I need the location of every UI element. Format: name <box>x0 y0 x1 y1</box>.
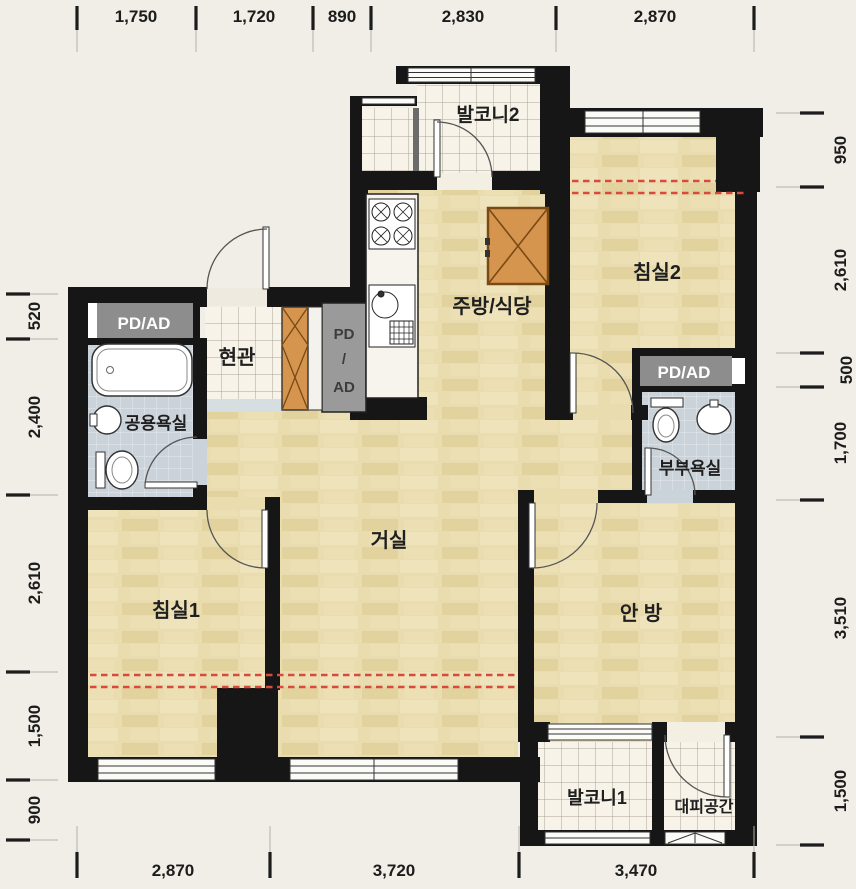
bedroom2-floor-upper <box>570 137 718 194</box>
dim-bottom-1: 2,870 <box>152 861 195 880</box>
entrance-label: 현관 <box>219 346 256 369</box>
bathroom-sink-tap-icon <box>90 414 97 426</box>
entrance-step <box>205 399 285 412</box>
dim-left-3: 2,610 <box>25 562 44 605</box>
dim-right-2: 2,610 <box>831 249 850 292</box>
balcony1-bottom-window <box>545 832 650 844</box>
dim-left-5: 900 <box>25 796 44 824</box>
kitchen-sink <box>369 285 415 347</box>
dim-top-1: 1,750 <box>115 7 158 26</box>
dim-left-2: 2,400 <box>25 396 44 439</box>
dim-right-6: 1,500 <box>831 770 850 813</box>
pd-ad-left-label: PD/AD <box>118 314 171 333</box>
pd-ad-middle-label-1: PD <box>334 326 355 343</box>
dim-right-4: 1,700 <box>831 422 850 465</box>
bedroom2-label: 침실2 <box>633 261 681 284</box>
dim-bottom-3: 3,470 <box>615 861 658 880</box>
pd-ad-right-label: PD/AD <box>658 363 711 382</box>
floor-plan-svg: 발코니2 침실2 주방/식당 현관 공용욕실 부부욕실 거실 침실1 안 방 발… <box>0 0 856 889</box>
dim-top-2: 1,720 <box>233 7 276 26</box>
master-bathroom-label: 부부욕실 <box>659 459 722 478</box>
master-balcony1-window <box>548 724 652 740</box>
dim-left-4: 1,500 <box>25 705 44 748</box>
hall-floor <box>518 420 640 500</box>
bedroom1-label: 침실1 <box>152 599 200 622</box>
common-bathroom-label: 공용욕실 <box>125 414 188 433</box>
refuge-label: 대피공간 <box>675 798 734 816</box>
dim-bottom-2: 3,720 <box>373 861 416 880</box>
master-bedroom-label: 안 방 <box>620 602 663 625</box>
dim-top-3: 890 <box>328 7 356 26</box>
pd-ad-left-vent <box>88 303 97 338</box>
master-sink <box>697 404 731 434</box>
kitchen-dining-label: 주방/식당 <box>452 295 532 318</box>
master-toilet-tank <box>651 398 683 407</box>
stove <box>369 199 415 249</box>
refuge-breakout-window <box>665 832 725 844</box>
shoe-cabinet <box>282 307 308 410</box>
dim-right-3: 500 <box>837 356 856 384</box>
pd-ad-right-vent <box>732 358 745 384</box>
living-room-label: 거실 <box>371 529 408 552</box>
balcony2-divider-wall <box>413 108 419 178</box>
dim-right-1: 950 <box>831 136 850 164</box>
bedroom2-top-window <box>585 111 700 133</box>
balcony2-label: 발코니2 <box>456 104 519 126</box>
balcony1-floor <box>538 742 652 832</box>
balcony2-top-window <box>408 68 535 82</box>
pd-ad-middle-label-3: AD <box>333 379 355 396</box>
master-sink-tap-icon <box>710 400 718 407</box>
dim-left-1: 520 <box>25 302 44 330</box>
bedroom1-bottom-window <box>98 759 215 780</box>
balcony1-label: 발코니1 <box>567 788 627 808</box>
dim-right-5: 3,510 <box>831 597 850 640</box>
toilet-tank <box>96 452 105 488</box>
entrance-side-gap <box>308 307 322 410</box>
dining-table <box>485 208 548 284</box>
dim-top-4: 2,830 <box>442 7 485 26</box>
dim-top-5: 2,870 <box>634 7 677 26</box>
balcony2-sub-floor <box>362 108 415 178</box>
floor-plan: 발코니2 침실2 주방/식당 현관 공용욕실 부부욕실 거실 침실1 안 방 발… <box>0 0 856 889</box>
living-bottom-window <box>290 759 458 780</box>
balcony2-sub-window <box>362 98 415 104</box>
